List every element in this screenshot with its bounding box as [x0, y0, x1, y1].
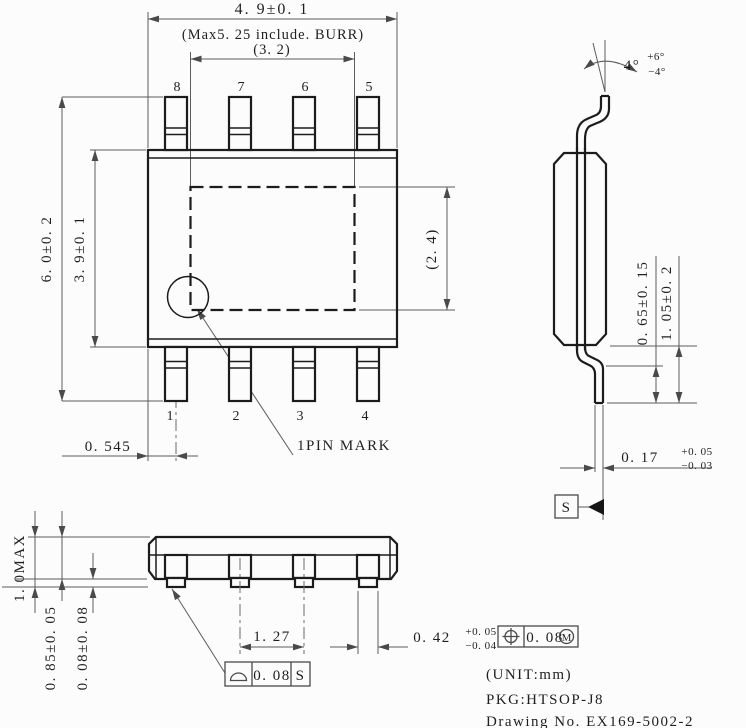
- package-outline-drawing: 4. 9±0. 1 (Max5. 25 include. BURR) (3. 2…: [0, 0, 746, 728]
- dim-pad-width-label: (3. 2): [253, 42, 290, 58]
- dim-overall-width-label: 4. 9±0. 1: [235, 1, 310, 18]
- lead-angle-callout: 4° +6° −4°: [584, 40, 666, 92]
- dim-total-height-label: 1. 0MAX: [12, 534, 28, 602]
- package-name: PKG:HTSOP-J8: [486, 692, 604, 708]
- notes-block: (UNIT:mm) PKG:HTSOP-J8 Drawing No. EX169…: [486, 667, 694, 728]
- dim-lead-thickness-plus: +0. 05: [681, 446, 712, 458]
- top-view: 4. 9±0. 1 (Max5. 25 include. BURR) (3. 2…: [39, 1, 455, 462]
- pin-mark-label: 1PIN MARK: [297, 438, 391, 454]
- top-view-pins-bottom: [165, 347, 379, 401]
- pin-number-7: 7: [238, 80, 245, 95]
- seating-plane-symbol-icon: [231, 673, 247, 681]
- front-view-dimension-lines: 1. 0MAX 0. 85±0. 05 0. 08±0. 08: [2, 511, 150, 690]
- dim-lead-thickness-label: 0. 17: [621, 450, 659, 466]
- dim-pad-height-label: (2. 4): [424, 228, 440, 270]
- seating-datum-label: S: [296, 668, 306, 684]
- pin-1: [165, 347, 187, 401]
- pin-number-2: 2: [233, 409, 240, 424]
- dim-lead-pitch-label: 1. 27: [253, 629, 291, 645]
- dim-overall-height-label: 6. 0±0. 2: [39, 216, 55, 283]
- pin-number-8: 8: [174, 80, 181, 95]
- position-symbol-icon: [503, 628, 520, 645]
- dim-body-height-label: 3. 9±0. 1: [72, 216, 88, 283]
- side-view: 4° +6° −4° 0. 65±0. 15 1. 05±0. 2 0. 17 …: [554, 40, 713, 520]
- datum-s-label: S: [562, 500, 572, 516]
- pin-7: [229, 97, 251, 150]
- side-body-outline: [554, 153, 606, 345]
- lead-angle-plus-label: +6°: [647, 51, 665, 63]
- lead-width-dim: 0. 42 +0. 05 −0. 04: [330, 591, 497, 654]
- front-pin-1: [165, 555, 187, 587]
- side-view-body: [554, 96, 609, 403]
- position-tolerance-value: 0. 08: [526, 630, 564, 646]
- unit-note: (UNIT:mm): [486, 667, 572, 683]
- pin-number-5: 5: [366, 80, 373, 95]
- dim-body-thickness-label: 0. 85±0. 05: [43, 606, 59, 691]
- top-view-body: [148, 150, 397, 347]
- dim-lead-thickness-minus: −0. 03: [681, 460, 712, 472]
- dim-pin1-offset-label: 0. 545: [85, 439, 132, 455]
- pin-number-6: 6: [302, 80, 309, 95]
- seating-tolerance-value: 0. 08: [253, 668, 291, 684]
- dim-lead-height-label: 1. 05±0. 2: [659, 265, 675, 341]
- dim-lead-width-plus: +0. 05: [465, 626, 496, 638]
- position-tolerance-frame: 0. 08 M: [498, 626, 578, 647]
- lead-top-inner: [585, 96, 609, 150]
- side-view-dimension-lines: 0. 65±0. 15 1. 05±0. 2 0. 17 +0. 05 −0. …: [560, 256, 713, 520]
- drawing-number: Drawing No. EX169-5002-2: [486, 714, 694, 728]
- front-view-pins: [165, 555, 379, 587]
- exposed-pad-outline: [191, 187, 355, 310]
- front-view: 1. 0MAX 0. 85±0. 05 0. 08±0. 08: [2, 511, 578, 690]
- pin-8: [165, 97, 187, 150]
- mmc-modifier-label: M: [562, 632, 572, 644]
- dim-lead-width-minus: −0. 04: [465, 640, 496, 652]
- dim-lead-flat-label: 0. 65±0. 15: [635, 261, 651, 346]
- pin-4: [357, 347, 379, 401]
- drawing-canvas: 4. 9±0. 1 (Max5. 25 include. BURR) (3. 2…: [0, 0, 746, 728]
- top-view-pins-top: [165, 97, 379, 150]
- burr-note-label: (Max5. 25 include. BURR): [182, 27, 364, 43]
- front-pin-4: [357, 555, 379, 587]
- pin-number-1: 1: [167, 409, 174, 424]
- pin-2: [229, 347, 251, 401]
- pin-number-3: 3: [297, 409, 304, 424]
- dim-standoff-label: 0. 08±0. 08: [75, 606, 91, 691]
- pin-5: [357, 97, 379, 150]
- datum-triangle: [588, 499, 604, 515]
- pin-number-4: 4: [362, 409, 369, 424]
- pin-3: [293, 347, 315, 401]
- pin1-mark-circle: [168, 277, 209, 318]
- dim-lead-width-label: 0. 42: [413, 630, 451, 646]
- datum-s-callout: S: [555, 495, 604, 518]
- lead-angle-minus-label: −4°: [648, 66, 666, 78]
- lead-angle-label: 4°: [624, 58, 641, 74]
- pin-6: [293, 97, 315, 150]
